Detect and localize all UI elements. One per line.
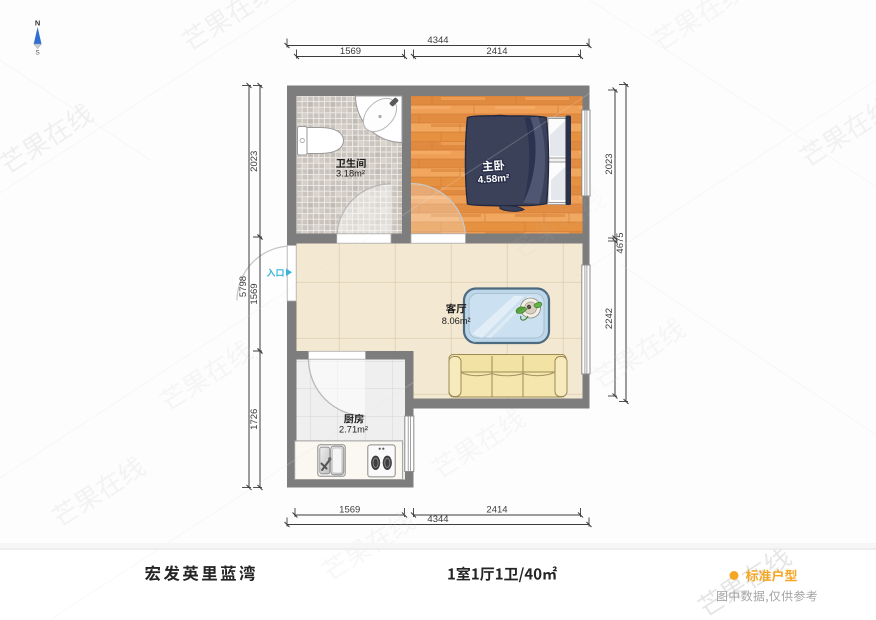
svg-text:S: S — [35, 50, 40, 57]
svg-text:1569: 1569 — [249, 283, 260, 304]
svg-text:4344: 4344 — [427, 514, 448, 525]
svg-text:2023: 2023 — [249, 151, 260, 172]
svg-text:1569: 1569 — [339, 505, 360, 516]
svg-text:2414: 2414 — [486, 505, 507, 516]
svg-text:4344: 4344 — [427, 35, 448, 46]
svg-text:4675: 4675 — [615, 232, 626, 253]
svg-text:2023: 2023 — [604, 153, 615, 174]
svg-text:2414: 2414 — [486, 46, 507, 57]
svg-text:5798: 5798 — [238, 276, 249, 297]
svg-text:1569: 1569 — [340, 46, 361, 57]
svg-text:2.71m²: 2.71m² — [339, 425, 368, 435]
svg-text:1726: 1726 — [249, 409, 260, 430]
svg-text:8.06m²: 8.06m² — [442, 316, 471, 326]
svg-text:N: N — [35, 19, 40, 28]
svg-text:3.18m²: 3.18m² — [336, 169, 365, 179]
svg-text:2242: 2242 — [604, 308, 615, 329]
svg-text:4.58m²: 4.58m² — [477, 173, 510, 186]
